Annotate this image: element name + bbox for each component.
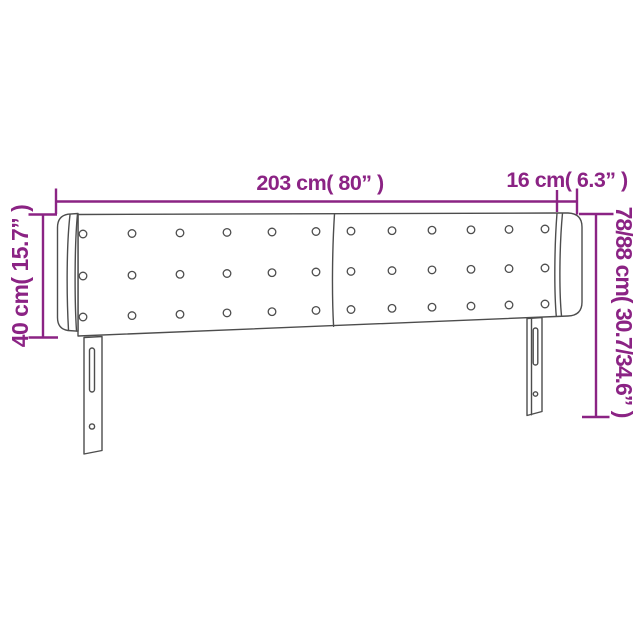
left-leg — [84, 337, 102, 455]
diagram-svg: 203 cm( 80” ) 16 cm( 6.3” ) 40 cm( 15.7”… — [0, 0, 640, 640]
right-leg — [527, 318, 542, 416]
tuft-button — [79, 313, 87, 321]
right-leg-outline — [527, 318, 542, 416]
tuft-button — [176, 311, 184, 319]
tuft-button — [312, 268, 320, 276]
headboard-dimension-diagram: 203 cm( 80” ) 16 cm( 6.3” ) 40 cm( 15.7”… — [0, 0, 640, 640]
total-width-label: 203 cm( 80” ) — [256, 171, 384, 195]
tuft-button — [541, 264, 549, 272]
tuft-button — [128, 271, 136, 279]
tuft-button — [128, 312, 136, 320]
tuft-button — [128, 230, 136, 238]
tuft-button — [467, 226, 475, 234]
tuft-button — [79, 272, 87, 280]
side-panel-width-label: 16 cm( 6.3” ) — [506, 168, 628, 192]
headboard-drawing — [58, 213, 583, 454]
tuft-button — [79, 230, 87, 238]
left-wing — [58, 214, 79, 332]
tuft-button — [347, 268, 355, 276]
tuft-button — [541, 225, 549, 233]
tuft-button — [347, 227, 355, 235]
tuft-button — [505, 301, 513, 309]
tuft-button — [347, 306, 355, 314]
tuft-button — [268, 228, 276, 236]
tuft-button — [467, 302, 475, 310]
tuft-button — [541, 300, 549, 308]
tuft-button — [176, 229, 184, 237]
tuft-button — [388, 267, 396, 275]
total-height-label: 78/88 cm( 30.7/34.6” ) — [611, 207, 637, 418]
tuft-button — [176, 271, 184, 279]
tuft-button — [312, 307, 320, 315]
tuft-button — [312, 228, 320, 236]
tuft-button — [428, 266, 436, 274]
tuft-button — [223, 270, 231, 278]
tuft-button — [428, 303, 436, 311]
tuft-button — [268, 308, 276, 316]
tuft-button — [428, 226, 436, 234]
tuft-button — [268, 269, 276, 277]
panel-height-label: 40 cm( 15.7” ) — [7, 205, 33, 348]
tuft-button — [388, 227, 396, 235]
tuft-button — [223, 309, 231, 317]
tuft-button — [505, 265, 513, 273]
tuft-button — [388, 305, 396, 313]
tuft-button — [505, 226, 513, 234]
tuft-button — [223, 229, 231, 237]
tuft-button — [467, 266, 475, 274]
left-leg-outline — [84, 337, 102, 455]
